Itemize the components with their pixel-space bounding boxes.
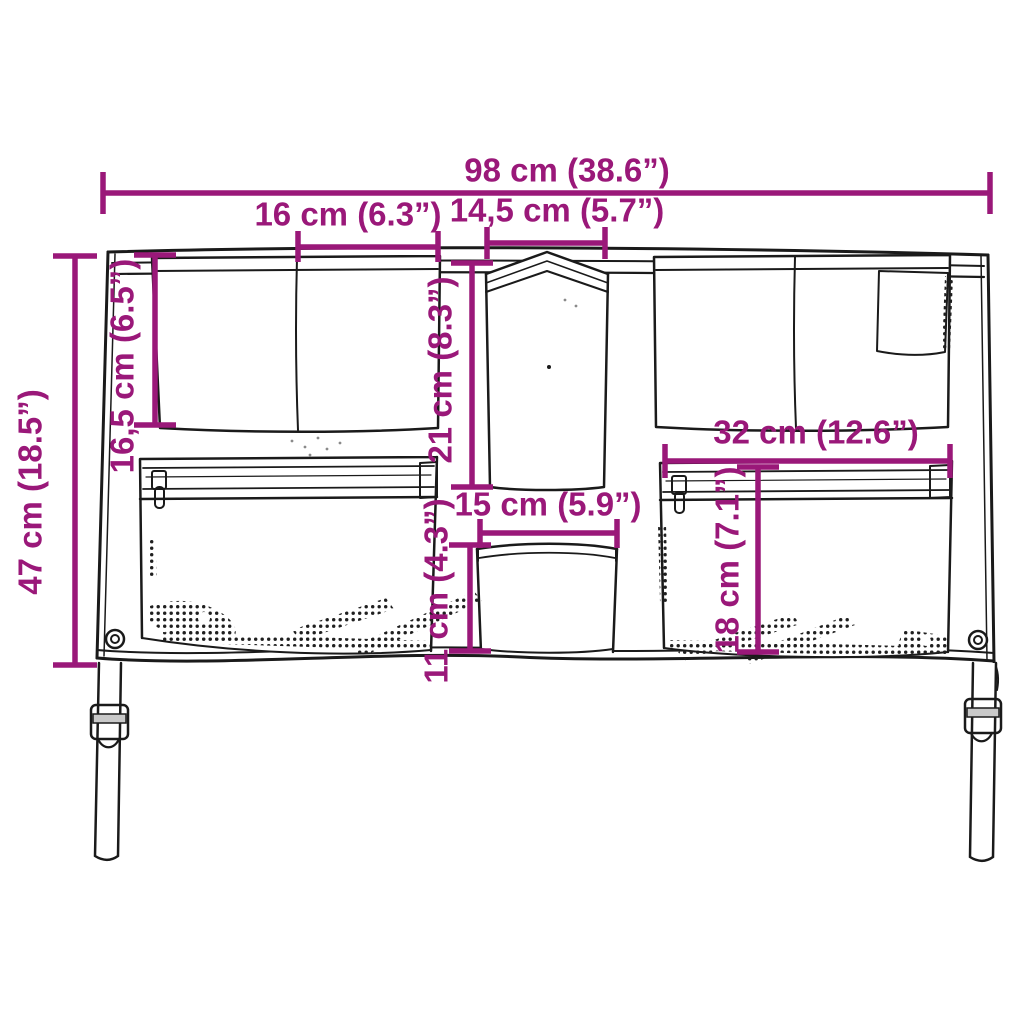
product-dimension-diagram: 98 cm (38.6”) 16 cm (6.3”) 14,5 cm (5.7”… (0, 0, 1024, 1024)
diagram-canvas: 98 cm (38.6”) 16 cm (6.3”) 14,5 cm (5.7”… (0, 0, 1024, 1024)
dim-right-pocket-height-label: 18 cm (7.1”) (709, 466, 746, 653)
dim-center-top-pocket-height-label: 21 cm (8.3”) (422, 276, 459, 463)
dim-left-top-pocket-height-label: 16,5 cm (6.5”) (104, 259, 141, 474)
center-bottom-pocket (477, 544, 617, 653)
dim-center-bottom-pocket-width-label: 15 cm (5.9”) (454, 486, 641, 523)
right-zip-pocket (660, 461, 952, 657)
organizer-drawing (91, 248, 1001, 861)
right-strap (965, 663, 1001, 861)
center-top-pocket (486, 252, 608, 491)
top-left-pocket-pair (152, 256, 440, 433)
dim-center-top-pocket-width-label: 14,5 cm (5.7”) (450, 192, 665, 229)
top-right-pocket-pair (654, 255, 950, 431)
left-strap (91, 663, 128, 860)
dim-right-pocket-width-label: 32 cm (12.6”) (713, 414, 918, 451)
dim-center-bottom-pocket-height-label: 11 cm (4.3”) (418, 498, 455, 683)
dim-left-top-pocket-width-label: 16 cm (6.3”) (254, 196, 441, 233)
dim-overall-height-label: 47 cm (18.5”) (12, 389, 49, 594)
dim-overall-height: 47 cm (18.5”) (12, 256, 97, 665)
fabric-speck (547, 365, 551, 369)
dim-overall-width-label: 98 cm (38.6”) (464, 152, 669, 189)
